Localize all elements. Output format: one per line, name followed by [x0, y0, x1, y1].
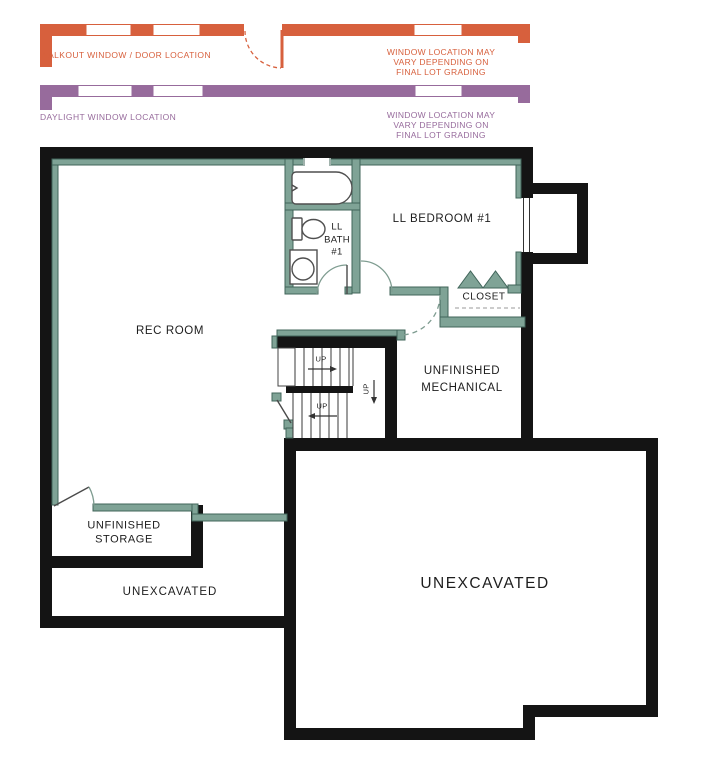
closet-north-wall-right	[508, 285, 521, 293]
stair-right-wall	[385, 348, 397, 438]
storage-door-swing-arc	[89, 487, 94, 506]
storage-label: UNFINISHED STORAGE	[87, 520, 160, 547]
bath-door-jamb	[345, 287, 352, 294]
up-arrowhead-upper	[330, 366, 337, 372]
up-label-landing: UP	[362, 383, 371, 394]
walkout-bar-left-stub	[40, 24, 52, 67]
east-wall-upper	[521, 147, 533, 198]
daylight-legend-note: WINDOW LOCATION MAY VARY DEPENDING ON FI…	[387, 110, 495, 140]
closet-bifold-doors	[458, 271, 508, 288]
bath-door-swing-arc	[317, 265, 347, 294]
stair-top-wall	[277, 336, 397, 348]
walkout-window-segment	[153, 25, 200, 36]
daylight-window-segment	[153, 86, 203, 97]
unexcavated-bottom-right-wall	[523, 705, 658, 717]
bath-label-line: LL	[324, 221, 350, 234]
north-wall	[40, 147, 533, 159]
walkout-window-segment	[86, 25, 131, 36]
walkout-legend-note: WINDOW LOCATION MAY VARY DEPENDING ON FI…	[387, 47, 495, 77]
walkout-legend-label: WALKOUT WINDOW / DOOR LOCATION	[40, 50, 211, 60]
storage-label-line: UNFINISHED	[87, 520, 160, 534]
bedroom-label: LL BEDROOM #1	[393, 213, 492, 225]
bath-label-line: BATH	[324, 234, 350, 247]
daylight-legend-bar	[40, 85, 530, 110]
unexcavated-west-wall	[284, 438, 296, 740]
window-well-bottom-wall	[533, 253, 588, 264]
walkout-note-line: VARY DEPENDING ON	[387, 57, 495, 67]
storage-label-line: STORAGE	[87, 533, 160, 547]
west-wall	[40, 147, 52, 627]
walkout-door-opening	[244, 23, 282, 37]
unexcavated-east-wall	[646, 438, 658, 717]
daylight-bar-right-stub	[518, 85, 530, 103]
bedroom-window	[524, 198, 530, 252]
east-wall-lining-upper	[516, 165, 521, 198]
sink-basin	[292, 258, 314, 280]
up-label-upper: UP	[315, 355, 326, 364]
stair-west-wall	[286, 428, 293, 438]
stair-divider-wall	[286, 386, 353, 393]
bathtub	[292, 172, 352, 204]
mechanical-door-swing-arc	[400, 295, 440, 335]
storage-door-leaf	[54, 487, 89, 506]
floor-plan-page: WALKOUT WINDOW / DOOR LOCATION WINDOW LO…	[0, 0, 704, 768]
daylight-bar-left-stub	[40, 85, 52, 110]
walkout-note-line: WINDOW LOCATION MAY	[387, 47, 495, 57]
stair-landing-rail	[278, 348, 295, 386]
walkout-window-segment	[414, 25, 462, 36]
unexcavated-large-label: UNEXCAVATED	[420, 575, 549, 593]
up-label-lower: UP	[316, 402, 327, 411]
walkout-bar-right-stub	[518, 24, 530, 43]
unexcavated-top-wall	[284, 438, 658, 451]
east-wall-lower	[521, 252, 533, 438]
daylight-window-segment	[78, 86, 132, 97]
rec-room-south-wall-a	[93, 504, 192, 511]
bedroom-window-glass-lines	[524, 198, 530, 252]
daylight-note-line: VARY DEPENDING ON	[387, 120, 495, 130]
closet-label: CLOSET	[462, 292, 505, 303]
bedroom-south-wall	[390, 287, 443, 295]
toilet-bowl	[302, 220, 325, 239]
closet-south-wall	[440, 317, 525, 327]
bedroom-door-swing-arc	[361, 261, 392, 292]
mechanical-label: UNFINISHED MECHANICAL	[421, 363, 502, 397]
storage-bottom-wall	[40, 556, 203, 568]
daylight-note-line: WINDOW LOCATION MAY	[387, 110, 495, 120]
bath-label-line: #1	[324, 246, 350, 259]
unexcavated-strip-bottom-wall	[40, 616, 288, 628]
hall-south-lining	[277, 330, 397, 336]
bath-top-window-gap	[303, 158, 331, 166]
window-well-right-wall	[577, 183, 588, 264]
daylight-note-line: FINAL LOT GRADING	[387, 130, 495, 140]
bath-south-wall	[285, 287, 318, 294]
unexcavated-strip-label: UNEXCAVATED	[123, 586, 218, 598]
unexcavated-bottom-left-wall	[284, 728, 535, 740]
mechanical-label-line: UNFINISHED	[421, 363, 502, 380]
toilet-tank	[292, 218, 302, 240]
mechanical-label-line: MECHANICAL	[421, 380, 502, 397]
west-wall-lining	[52, 165, 58, 505]
rec-room-south-wall-b	[192, 514, 287, 521]
walkout-note-line: FINAL LOT GRADING	[387, 67, 495, 77]
stair-wall-end-cap	[272, 336, 277, 348]
up-arrowhead-landing	[371, 397, 377, 404]
stair-door-jamb-upper	[272, 393, 281, 401]
rec-room-label: REC ROOM	[136, 325, 204, 337]
daylight-legend-label: DAYLIGHT WINDOW LOCATION	[40, 112, 176, 122]
walkout-door-leaf	[281, 30, 284, 68]
east-wall-lining-lower	[516, 252, 521, 290]
bath-label: LL BATH #1	[324, 221, 350, 259]
bath-bedroom-wall	[352, 159, 360, 293]
daylight-window-segment	[415, 86, 462, 97]
